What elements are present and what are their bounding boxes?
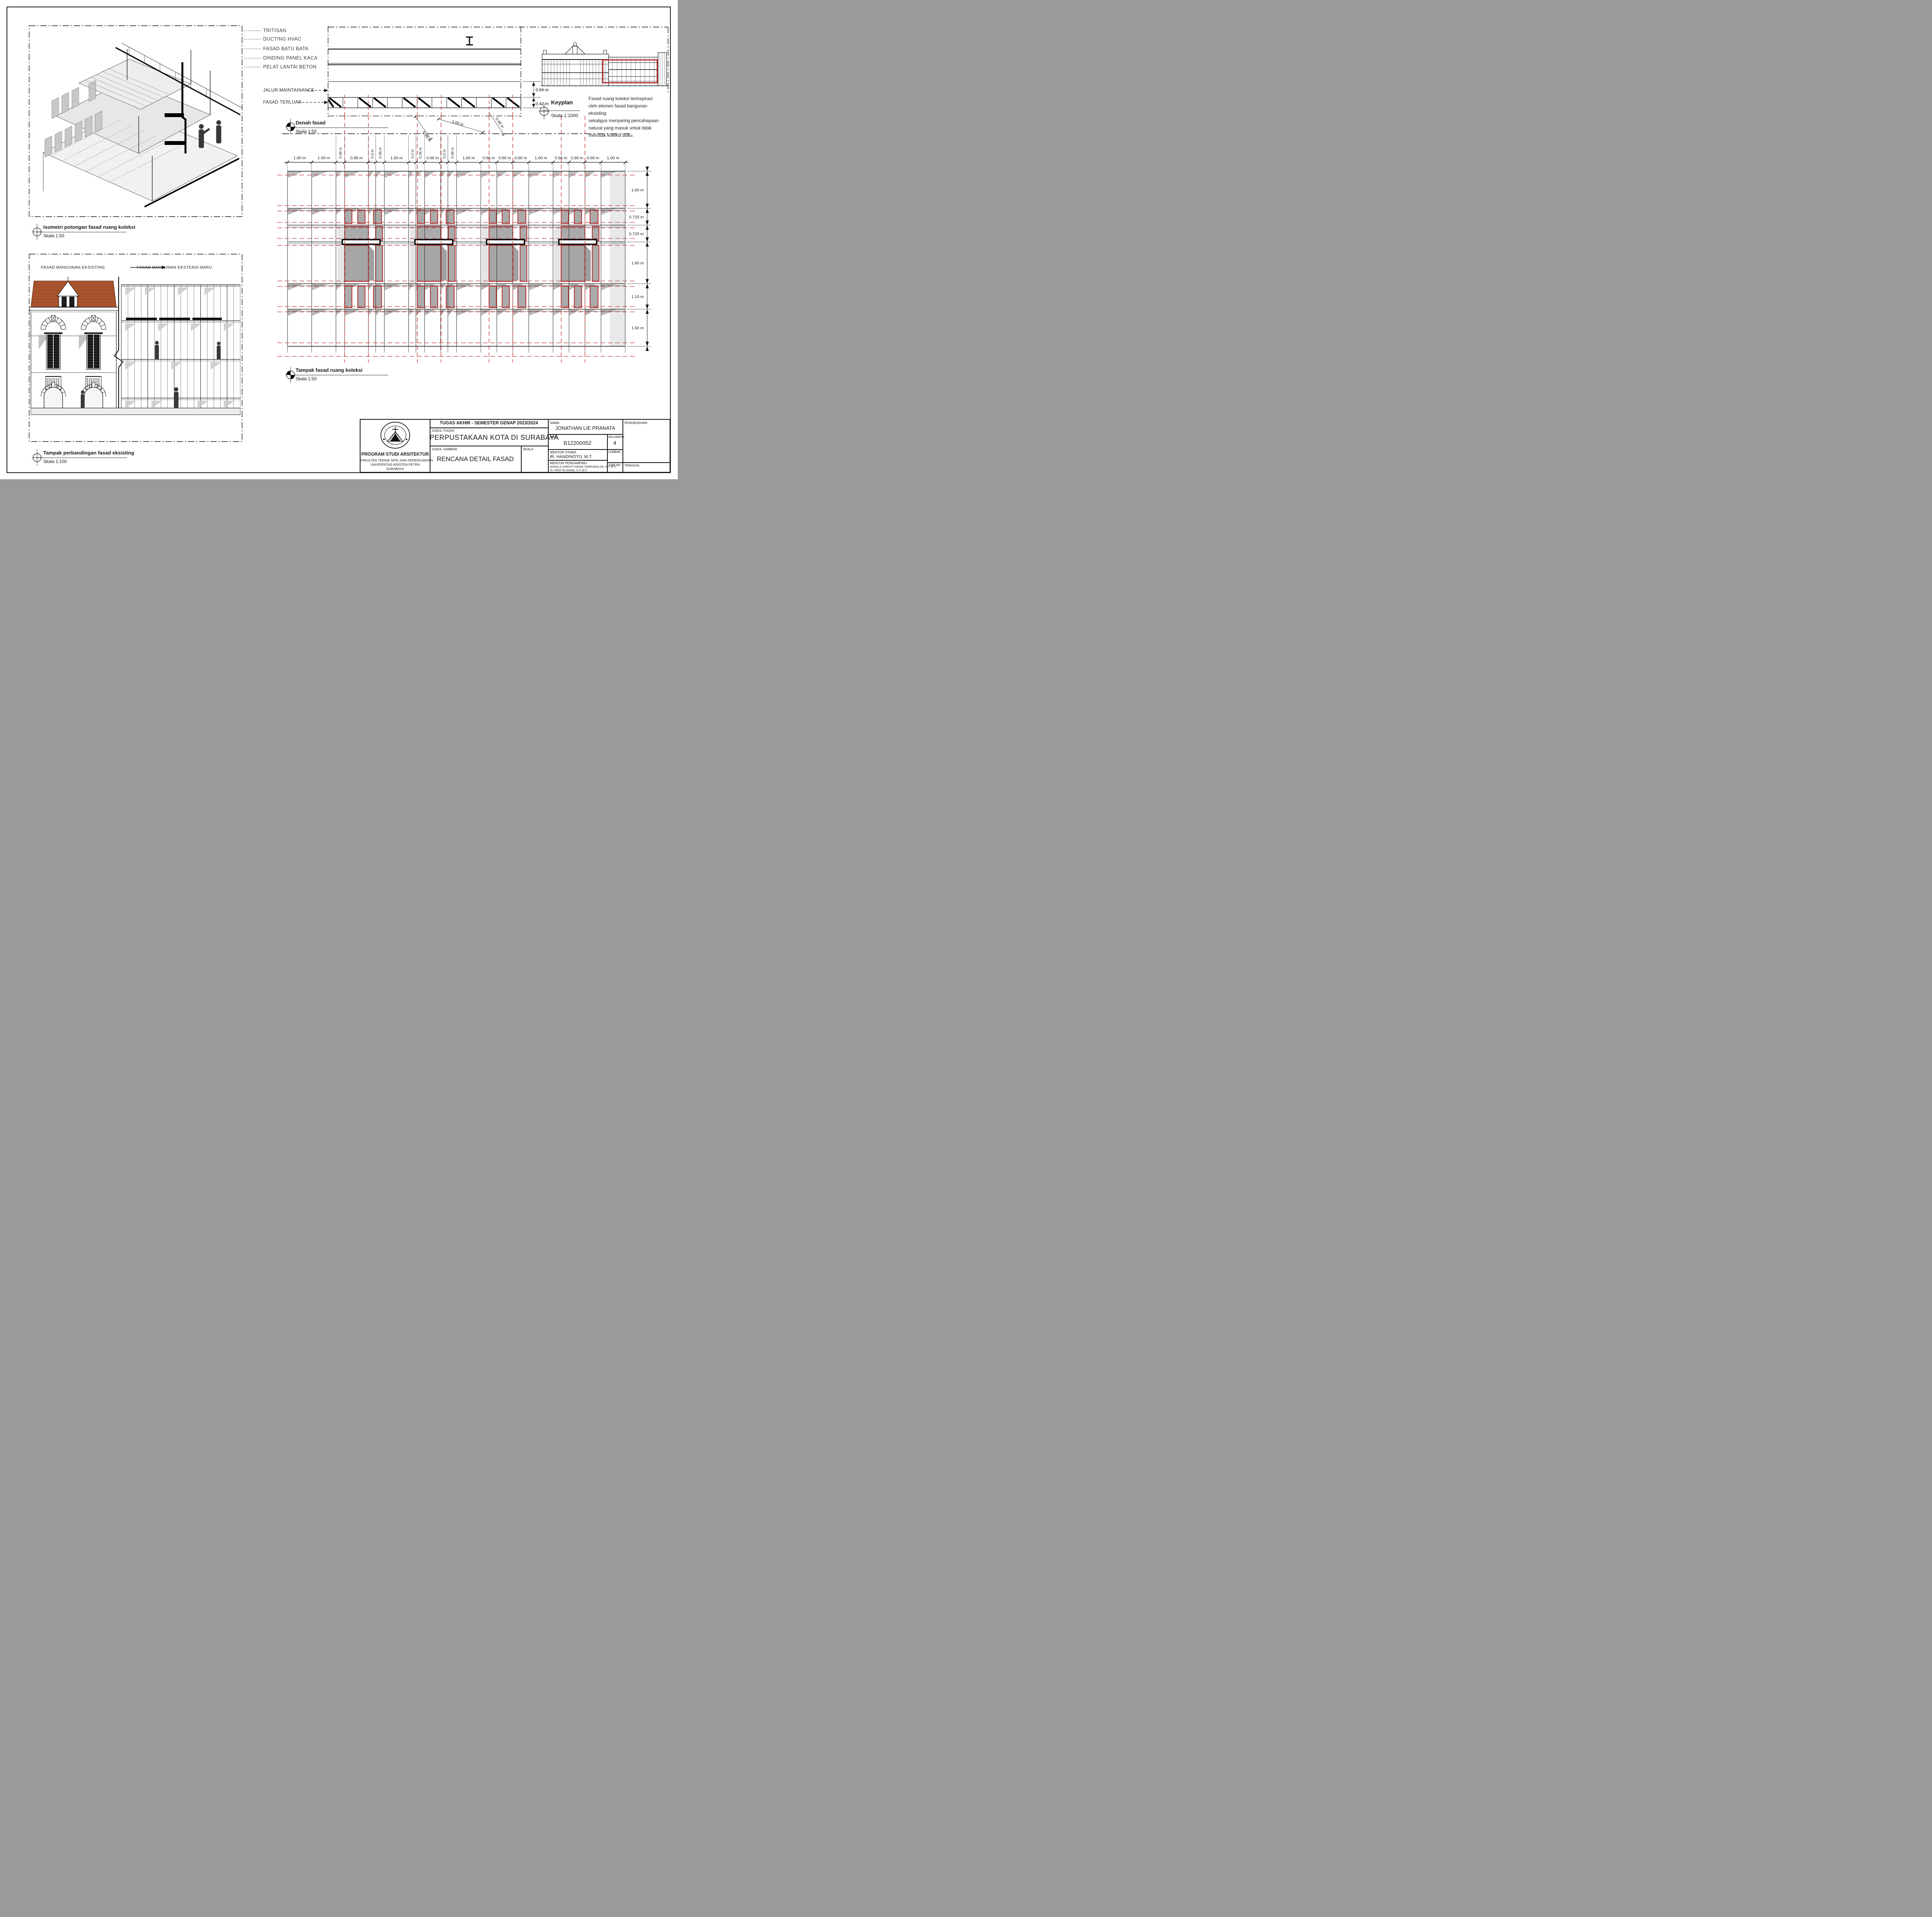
leader-line — [244, 31, 261, 31]
kelompok-value: 4 — [607, 440, 622, 446]
svg-text:1.00 m: 1.00 m — [607, 156, 619, 160]
title-block: PROGRAM STUDI ARSITEKTUR FAKULTAS TEKNIK… — [360, 419, 670, 473]
student-name: JONATHAN LIE PRANATA — [548, 425, 622, 431]
comparison-label-left: FASAD BANGUNAN EKSISTING — [41, 265, 105, 270]
mentor-pendamping-1: ANGELA CHRISTYSONIA TAMPUBOLON, S.T.,M.T… — [550, 465, 617, 468]
svg-text:0.3 m: 0.3 m — [410, 149, 415, 158]
tanggal-label: TANGGAL — [624, 463, 640, 467]
callout-pelat-lantai-beton: PELAT LANTAI BETON — [263, 64, 316, 70]
callout-fasad-batu-bata: FASAD BATU BATA — [263, 46, 308, 51]
judul-gambar-label: JUDUL GAMBAR — [432, 447, 457, 451]
title-rule — [289, 128, 388, 128]
svg-text:0.36 m: 0.36 m — [418, 147, 423, 158]
leader-line — [244, 39, 261, 39]
leader-line — [244, 49, 261, 49]
svg-text:1.10 m: 1.10 m — [631, 295, 644, 299]
drawing-title: RENCANA DETAIL FASAD — [430, 456, 521, 463]
svg-text:0.66 m: 0.66 m — [571, 156, 583, 160]
comparison-scale: Skala 1:100 — [43, 460, 67, 464]
svg-text:0.3 m: 0.3 m — [370, 149, 374, 158]
skala-label: SKALA — [523, 447, 533, 451]
svg-text:0.725 m: 0.725 m — [629, 232, 644, 236]
nama-label: NAMA — [550, 421, 560, 425]
svg-text:1.00 m: 1.00 m — [390, 156, 403, 160]
keyplan-note: Fasad ruang koleksi terinspirasi oleh el… — [588, 95, 666, 139]
elevation-scale: Skala 1:50 — [296, 377, 316, 381]
svg-text:1.00 m: 1.00 m — [293, 156, 306, 160]
callout-ducting-hvac: DUCTING HVAC — [263, 36, 301, 42]
svg-text:0.66 m: 0.66 m — [587, 156, 599, 160]
section-marker-icon — [285, 118, 296, 135]
svg-text:1.60 m: 1.60 m — [631, 326, 644, 330]
title-rule — [289, 375, 388, 375]
judul-tugas-label: JUDUL TUGAS — [432, 429, 454, 432]
keyplan-marker-icon — [538, 103, 550, 120]
plan-title: Denah fasad — [296, 120, 325, 126]
institution-program: PROGRAM STUDI ARSITEKTUR — [361, 452, 430, 457]
svg-text:1.80 m: 1.80 m — [631, 261, 644, 266]
note-line: natural yang masuk untuk tidak — [588, 124, 666, 132]
iso-scale: Skala 1:50 — [43, 234, 64, 238]
title-rule — [36, 458, 127, 458]
svg-text:0.36 m: 0.36 m — [378, 147, 383, 158]
keyplan-title: Keyplan — [551, 100, 573, 106]
jalur-maintainance-label: JALUR MAINTAINANCE — [263, 88, 315, 93]
note-line: merusak koleksi buku. — [588, 132, 666, 139]
callout-dinding-panel-kaca: DINDING PANEL KACA — [263, 55, 318, 61]
comparison-title: Tampak perbandingan fasad eksisting — [43, 450, 134, 456]
leader-line — [244, 58, 261, 58]
jumlah-label: JUMLAH — [608, 463, 620, 467]
svg-text:1.05 m: 1.05 m — [451, 119, 464, 127]
svg-text:0.66 m: 0.66 m — [498, 156, 511, 160]
drawing-sheet: TRITISAN DUCTING HVAC FASAD BATU BATA DI… — [0, 0, 678, 479]
mentor-pendamping-2: Dr. FENY ELSIANA, S.T.,M.T. — [550, 468, 587, 472]
svg-text:0.66 m: 0.66 m — [515, 156, 527, 160]
institution-university: UNIVERSITAS KRISTEN PETRA — [361, 463, 430, 466]
facade-comparison-figure — [29, 254, 243, 442]
nrp-label: NRP — [550, 435, 557, 439]
svg-text:0.66 m: 0.66 m — [555, 156, 567, 160]
project-title: PERPUSTAKAAN KOTA DI SURABAYA — [430, 434, 548, 442]
note-line: sekaligus menyaring pencahayaan — [588, 117, 666, 124]
nrp-value: B12200052 — [548, 440, 607, 446]
elevation-title: Tampak fasad ruang koleksi — [296, 367, 362, 373]
mentor-pendamping-label: MENTOR PENDAMPING — [550, 461, 587, 465]
facade-elevation-figure: 1.00 m1.00 m0.36 m0.98 m0.3 m0.36 m1.00 … — [267, 112, 665, 383]
lembar-label: LEMBAR — [608, 450, 621, 454]
svg-text:0.98 m: 0.98 m — [350, 156, 363, 160]
institution-city: SURABAYA — [361, 467, 430, 471]
note-line: Fasad ruang koleksi terinspirasi — [588, 95, 666, 102]
svg-text:1.00 m: 1.00 m — [463, 156, 475, 160]
kelompok-label: KELOMPOK — [608, 435, 625, 439]
svg-text:0.725 m: 0.725 m — [629, 215, 644, 220]
mentor-utama-value: IR. HANDINOTO, M.T. — [550, 455, 592, 459]
svg-text:0.36 m: 0.36 m — [338, 147, 343, 158]
comparison-label-right: FASAD BANGUNAN EKSTENSI BARU — [137, 265, 212, 270]
callout-tritisan: TRITISAN — [263, 28, 286, 33]
fasad-terluar-label: FASAD TERLUAR — [263, 100, 302, 105]
svg-text:0.36 m: 0.36 m — [451, 147, 455, 158]
title-rule — [541, 111, 580, 111]
note-line: oleh elemen fasad bangunan eksisting — [588, 102, 666, 117]
title-rule — [36, 232, 126, 232]
svg-text:0.66 m: 0.66 m — [427, 156, 439, 160]
isometric-section-figure — [29, 25, 243, 217]
pengesahan-label: PENGESAHAN — [624, 421, 647, 425]
tb-header: TUGAS AKHIR - SEMESTER GENAP 2023/2024 — [430, 421, 548, 426]
iso-title: Isometri potongan fasad ruang koleksi — [43, 224, 135, 230]
svg-text:0.66 m: 0.66 m — [483, 156, 495, 160]
leader-line — [244, 67, 261, 67]
plan-scale: Skala 1:50 — [296, 129, 316, 134]
institution-faculty: FAKULTAS TEKNIK SIPIL DAN PERENCANAAN — [361, 458, 430, 462]
svg-text:1.00 m: 1.00 m — [318, 156, 330, 160]
keyplan-figure — [541, 42, 668, 89]
svg-text:0.3 m: 0.3 m — [442, 149, 447, 158]
keyplan-scale: Skala 1:1000 — [551, 113, 578, 118]
svg-text:1.00 m: 1.00 m — [535, 156, 547, 160]
svg-text:1.60 m: 1.60 m — [631, 188, 644, 192]
mentor-utama-label: MENTOR UTAMA — [550, 450, 576, 454]
svg-text:0.48 m: 0.48 m — [422, 130, 432, 142]
university-logo — [380, 421, 411, 449]
